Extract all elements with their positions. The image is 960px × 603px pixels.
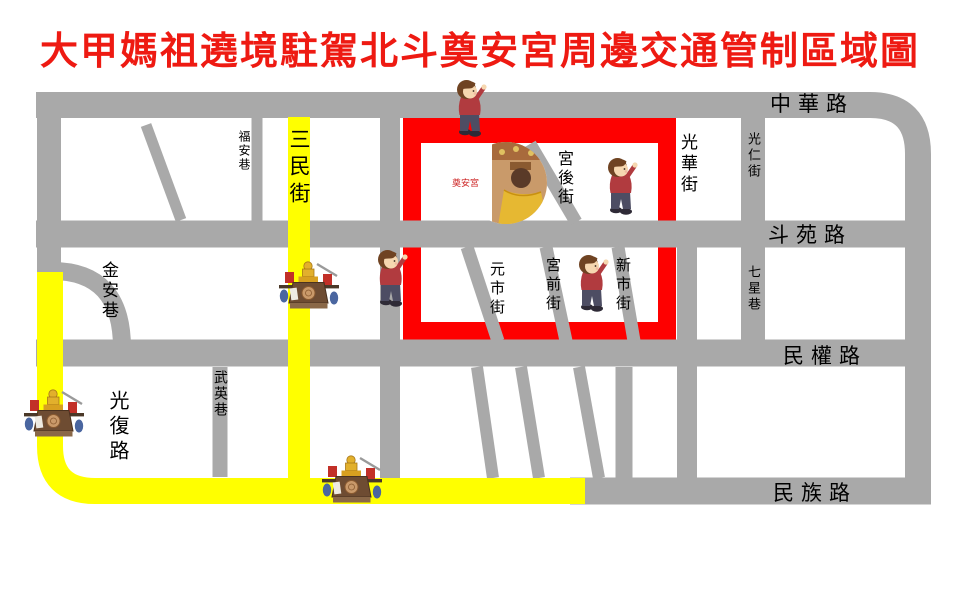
label-douyuan-rd: 斗苑路 [768, 224, 852, 246]
temple-seal-text: 奠安宮 [452, 177, 479, 189]
label-jinan-ln: 金安巷 [99, 261, 116, 321]
label-wuying-ln: 武英巷 [213, 370, 227, 418]
saluting-pilgrim-icon [608, 158, 638, 215]
dianan-temple-photo: 奠安宮 [452, 142, 548, 226]
map-canvas: 奠安宮 [0, 0, 960, 603]
control-zone-top-bar [403, 117, 676, 143]
label-minquan-rd: 民權路 [783, 345, 867, 367]
label-guanghua-st: 光華街 [678, 133, 695, 196]
label-guangren-ln: 光仁街 [746, 132, 759, 180]
label-guangfu-rd: 光復路 [108, 390, 128, 465]
traffic-control-map: 大甲媽祖遶境駐駕北斗奠安宮周邊交通管制區域圖 [0, 0, 960, 603]
label-sanmin-st: 三民街 [288, 128, 309, 209]
label-gongqian-st: 宮前街 [545, 257, 560, 314]
street-gongqian-south [521, 367, 539, 478]
label-qixing-ln: 七星巷 [746, 265, 759, 313]
label-minzu-rd: 民族路 [773, 482, 857, 504]
label-zhonghua-rd: 中華路 [770, 93, 854, 115]
label-gonghou-st: 宮後街 [556, 150, 572, 207]
label-xinshi-st: 新市街 [615, 257, 630, 314]
label-fuan-ln: 福安巷 [238, 130, 250, 172]
street-yuanshi-south [477, 367, 493, 478]
label-yuanshi-st: 元市街 [489, 261, 504, 318]
street-xinshi-south [579, 367, 599, 478]
lane-diagonal-northwest [146, 125, 181, 220]
saluting-pilgrim-icon [579, 255, 609, 312]
mazu-palanquin-icon [24, 390, 84, 437]
